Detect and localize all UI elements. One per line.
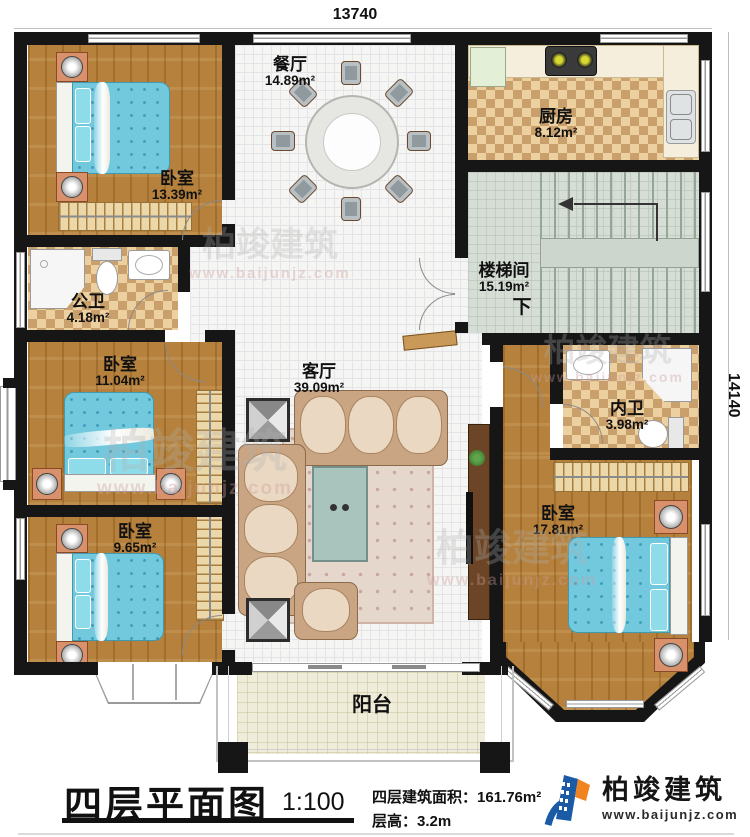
- footer-divider: [18, 833, 734, 835]
- pillow: [110, 458, 148, 475]
- pillow: [650, 543, 668, 585]
- bed-sheet-fold: [612, 537, 626, 633]
- floor-height-line: 层高：3.2m: [372, 810, 451, 831]
- lamp: [659, 643, 683, 667]
- kitchen-sink-basin-top: [670, 94, 692, 115]
- room-name: 卧室: [95, 356, 145, 374]
- sink-basin: [573, 355, 603, 375]
- bed-sheet-fold: [94, 82, 110, 174]
- bay-window-ml-pillar-top: [3, 378, 16, 388]
- balcony-sliding-door-leaf: [392, 665, 426, 669]
- window-right-kitchen: [701, 60, 710, 152]
- wall-bath-private-left: [550, 345, 563, 404]
- room-area: 39.09m²: [294, 381, 344, 395]
- kitchen-sink-basin-bottom: [670, 119, 692, 140]
- pillow: [75, 88, 91, 124]
- pillow: [68, 458, 106, 475]
- floor-plan-page: 卧室 13.39m² 餐厅 14.89m² 厨房 8.12m² 楼梯间 15.1…: [0, 0, 750, 837]
- plan-scale: 1:100: [282, 788, 345, 817]
- wall-bedroom-ml-bottom: [14, 505, 222, 517]
- coffee-table: [312, 466, 368, 562]
- bay-window-bl-mullion: [175, 664, 177, 700]
- bay-window-ml-pillar-bottom: [3, 480, 16, 490]
- stair-arrow-icon: [558, 197, 573, 211]
- room-name: 卧室: [533, 505, 583, 523]
- floor-area-value: 161.76m²: [477, 789, 541, 806]
- room-label-dining: 餐厅 14.89m²: [265, 56, 315, 88]
- lamp: [160, 473, 182, 495]
- brand-block: 柏竣建筑 www.baijunjz.com: [540, 766, 745, 832]
- brand-website: www.baijunjz.com: [602, 807, 738, 822]
- wardrobe: [196, 516, 224, 621]
- room-name: 卧室: [114, 523, 157, 541]
- room-area: 4.18m²: [67, 311, 110, 325]
- toilet-bowl: [96, 261, 118, 295]
- wall-kitchen-bottom: [455, 160, 712, 172]
- bay-window-bl-pillar-left: [84, 662, 98, 675]
- window-left-bedroom-bl: [16, 518, 25, 580]
- balcony-sliding-door-leaf: [308, 665, 342, 669]
- sofa-cushion: [396, 396, 442, 454]
- room-name: 厨房: [535, 108, 578, 126]
- window-top-bedroom-tl: [88, 34, 200, 43]
- room-name: 内卫: [606, 400, 649, 418]
- toilet-tank: [92, 248, 122, 261]
- wardrobe: [196, 390, 224, 504]
- sofa-cushion: [300, 396, 346, 454]
- room-name: 客厅: [294, 363, 344, 381]
- room-area: 15.19m²: [479, 280, 530, 294]
- dimension-line-top: [14, 28, 712, 29]
- wall-left-column: [222, 342, 235, 614]
- lamp: [36, 473, 58, 495]
- lamp: [61, 176, 83, 198]
- pillow: [75, 595, 91, 629]
- room-label-bedroom-bl: 卧室 9.65m²: [114, 523, 157, 555]
- lamp: [61, 528, 83, 550]
- room-name: 公卫: [67, 293, 110, 311]
- stair-direction-line-2: [656, 203, 658, 241]
- floor-area-label: 四层建筑面积：: [372, 789, 477, 806]
- bed-headboard: [64, 474, 156, 492]
- brand-name: 柏竣建筑: [602, 777, 738, 804]
- shower-drain: [40, 260, 48, 268]
- room-area: 3.98m²: [606, 418, 649, 432]
- room-label-bedroom-tl: 卧室 13.39m²: [152, 170, 202, 202]
- window-top-dining: [253, 34, 411, 43]
- stair-treads-lower: [540, 268, 699, 333]
- room-label-kitchen: 厨房 8.12m²: [535, 108, 578, 140]
- sink-basin: [135, 255, 163, 275]
- balcony-pillar-left: [218, 742, 248, 773]
- wall-corridor-left-lower: [490, 407, 503, 662]
- brand-logo-icon: [540, 769, 596, 829]
- floor-area-line: 四层建筑面积：161.76m²: [372, 786, 541, 807]
- bed-sheet-fold: [94, 553, 108, 641]
- stair-direction-line: [574, 203, 658, 205]
- bay-window-bl-glass: [91, 662, 217, 702]
- wardrobe: [553, 462, 689, 492]
- sofa-cushion: [244, 504, 298, 554]
- room-area: 8.12m²: [535, 126, 578, 140]
- wall-bath-public-right: [178, 247, 190, 292]
- stair-landing: [540, 238, 699, 268]
- down-text: 下: [512, 298, 531, 318]
- balcony-pillar-right: [480, 742, 510, 773]
- room-label-living: 客厅 39.09m²: [294, 363, 344, 395]
- side-table: [246, 398, 290, 442]
- floor-height-value: 3.2m: [417, 813, 451, 830]
- room-name: 楼梯间: [479, 262, 530, 280]
- wardrobe: [58, 202, 192, 231]
- room-label-stairwell: 楼梯间 15.19m²: [479, 262, 530, 294]
- lamp: [659, 505, 683, 529]
- wall-stairwell-left: [455, 172, 468, 258]
- fridge: [470, 47, 506, 87]
- room-area: 13.39m²: [152, 188, 202, 202]
- sofa-cushion: [302, 588, 350, 632]
- room-label-bath-public: 公卫 4.18m²: [67, 293, 110, 325]
- side-table: [246, 598, 290, 642]
- room-label-bath-private: 内卫 3.98m²: [606, 400, 649, 432]
- room-area: 17.81m²: [533, 523, 583, 537]
- dimension-top-value: 13740: [300, 6, 410, 24]
- lamp: [61, 56, 83, 78]
- bay-window-ml-glass: [0, 386, 16, 482]
- plant: [469, 450, 485, 466]
- title-underline: [62, 818, 354, 823]
- room-area: 14.89m²: [265, 74, 315, 88]
- dining-chair: [341, 61, 361, 85]
- stove-burner-left: [551, 52, 567, 68]
- stove-burner-right: [577, 52, 593, 68]
- pillow: [650, 589, 668, 631]
- coffee-table-item: [342, 504, 349, 511]
- coffee-table-item: [330, 504, 337, 511]
- balcony-sliding-door: [252, 663, 480, 672]
- dining-chair: [341, 197, 361, 221]
- pillow: [75, 559, 91, 593]
- wall-bath-private-bottom: [550, 448, 705, 460]
- wall-kitchen-left: [455, 45, 468, 172]
- window-right-bedroom-br: [701, 524, 710, 616]
- wall-bath-public-bottom: [14, 330, 165, 342]
- wall-bedroom-tl-right: [222, 45, 235, 200]
- pillow: [75, 126, 91, 162]
- window-right-stairwell: [701, 192, 710, 292]
- wall-corridor-left-upper: [490, 333, 503, 362]
- tv: [466, 492, 473, 564]
- room-area: 9.65m²: [114, 541, 157, 555]
- dimension-right-value: 14140: [724, 350, 742, 440]
- dimension-line-right: [728, 32, 729, 640]
- wall-stairwell-left-stub: [455, 322, 468, 333]
- room-name: 阳台: [352, 695, 392, 716]
- floor-height-label: 层高：: [372, 813, 417, 830]
- bed-headboard: [670, 537, 688, 635]
- sofa-cushion: [244, 452, 298, 502]
- room-label-balcony: 阳台: [352, 695, 392, 716]
- room-name: 餐厅: [265, 56, 315, 74]
- bay-window-bl-mullion: [132, 664, 134, 700]
- toilet-tank: [668, 417, 684, 451]
- dining-chair: [271, 131, 295, 151]
- wall-bedroom-ml-top-stub: [205, 330, 235, 342]
- wall-stairwell-bottom: [482, 333, 712, 345]
- window-top-kitchen: [600, 34, 688, 43]
- dining-table-center: [323, 113, 381, 171]
- room-area: 11.04m²: [95, 374, 145, 388]
- stair-down-label: 下: [512, 298, 531, 318]
- window-left-bath-public: [16, 252, 25, 328]
- wall-left-column-stub: [222, 650, 235, 662]
- sofa-cushion: [348, 396, 394, 454]
- bay-window-br-bottom-glass: [566, 700, 644, 708]
- dining-chair: [407, 131, 431, 151]
- room-label-bedroom-ml: 卧室 11.04m²: [95, 356, 145, 388]
- room-name: 卧室: [152, 170, 202, 188]
- room-label-bedroom-br: 卧室 17.81m²: [533, 505, 583, 537]
